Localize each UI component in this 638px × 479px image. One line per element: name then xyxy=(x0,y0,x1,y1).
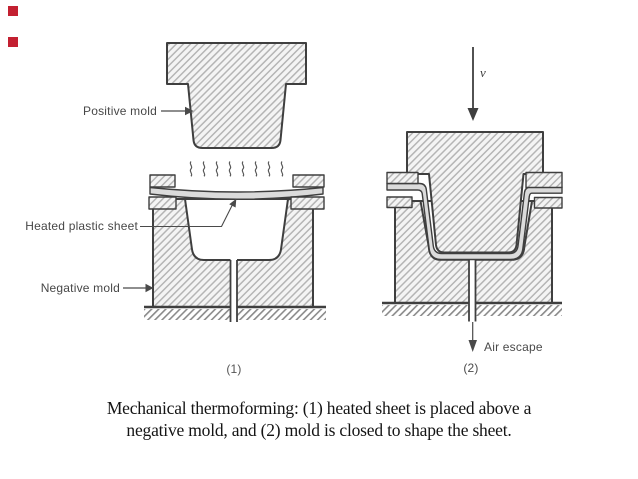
negative-mold-label: Negative mold xyxy=(16,281,120,295)
positive-mold-arrow-icon xyxy=(161,107,194,115)
clamp-block xyxy=(387,173,418,184)
caption-line-1: Mechanical thermoforming: (1) heated she… xyxy=(0,397,638,419)
right-stage-figure xyxy=(382,47,562,352)
left-stage-figure xyxy=(123,43,326,322)
clamp-block xyxy=(387,197,412,208)
positive-mold-shape xyxy=(167,43,306,148)
velocity-label: v xyxy=(480,66,486,80)
heated-plastic-sheet-label: Heated plastic sheet xyxy=(8,219,138,233)
clamp-block xyxy=(535,198,563,209)
stage-2-label: (2) xyxy=(458,361,484,375)
air-escape-arrow-icon xyxy=(469,322,478,352)
air-escape-label: Air escape xyxy=(484,340,543,354)
vent-channel xyxy=(231,259,238,322)
clamp-block xyxy=(149,197,176,209)
clamp-block xyxy=(293,175,324,187)
caption-line-2: negative mold, and (2) mold is closed to… xyxy=(0,419,638,441)
vent-channel xyxy=(469,258,476,322)
clamp-block xyxy=(291,197,324,209)
heat-waves-icon xyxy=(190,162,282,177)
figure-caption: Mechanical thermoforming: (1) heated she… xyxy=(0,397,638,441)
stage-1-label: (1) xyxy=(221,362,247,376)
clamp-block xyxy=(150,175,175,187)
clamp-block xyxy=(526,173,562,188)
velocity-arrow-icon xyxy=(468,47,479,121)
slide: Positive mold Heated plastic sheet Negat… xyxy=(0,0,638,479)
positive-mold-label: Positive mold xyxy=(53,104,157,118)
negative-mold-arrow-icon xyxy=(123,284,154,292)
